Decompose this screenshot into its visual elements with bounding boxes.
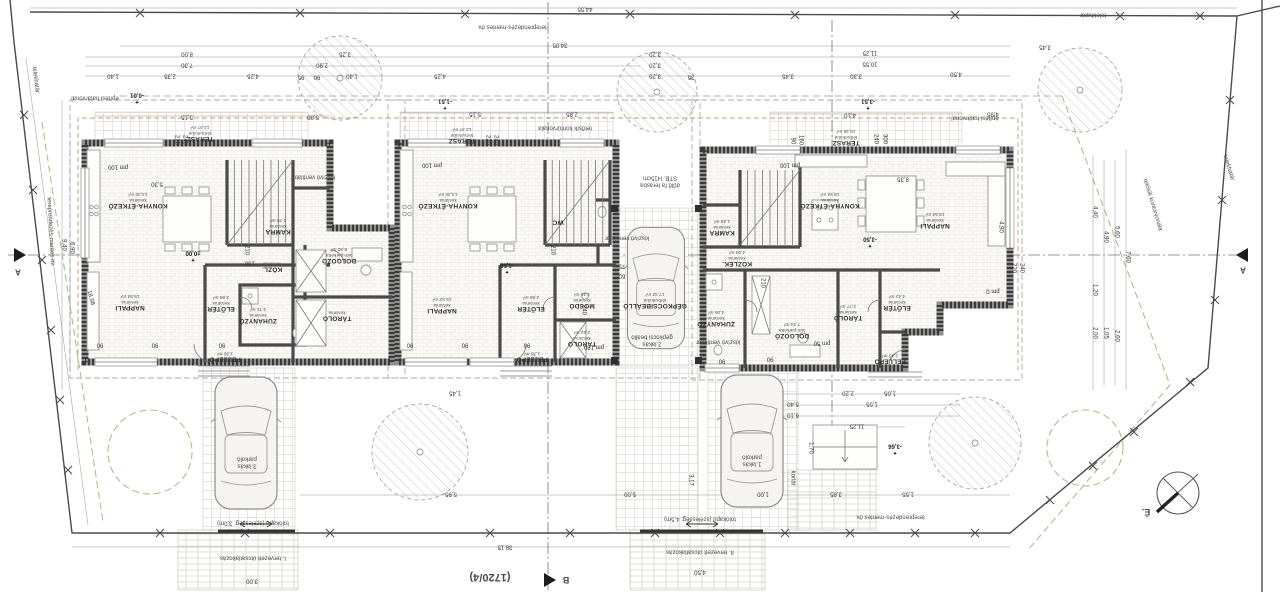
dimension-label: 130 [245,259,255,266]
elevation-label: -1,50 [500,261,514,274]
label-text: 60 [619,272,626,279]
label-text: (1720/4) [470,571,511,583]
label-text: II. tervezett útcsatlakozás [666,548,734,555]
annotation-label: tolókapu (szélesség: 4,5m) [664,515,736,522]
label-text: 1,05 [884,389,896,396]
room-finish: kerámia [418,196,477,201]
label-text: telekhatár [1080,11,1106,18]
room-label-zuhanyz-: ZUHANYZÓkerámia4,06 m² [697,309,735,327]
annotation-label: tolókapu (szélesség: 3,0m) [217,519,289,526]
dimension-label: 90 [407,341,414,348]
room-label-konyha-tkez-: KONYHA-ÉTKEZŐkerámia13,30 m² [418,191,477,209]
label-text: 1,20 [1091,284,1098,296]
label-text: telekhatár [1221,154,1235,181]
room-name: MOSDÓ [569,302,595,309]
label-text: 35 [688,73,695,80]
dimension-label: 3,00 [246,577,258,584]
label-text: pm 100 [780,161,800,168]
label-text: 240 [492,135,499,145]
label-text: 5,60 [1113,226,1120,238]
dimension-label: 6,90 [68,242,75,254]
label-text: 75 [619,262,626,269]
room-label-zuhanyz-: ZUHANYZÓkerámia3,71 m² [239,306,277,324]
label-text: pm 100 [108,163,128,170]
dimension-label: pm 100 [422,161,442,168]
label-text: 220 [1010,263,1017,273]
room-area: 18,54 m² [800,191,859,196]
label-text: 5,95 [445,490,457,497]
room-label-el-t-r: ELŐTÉRkerámia3,88 m² [207,294,235,312]
annotation-label: tereprendezés-mentes öv. [855,513,924,520]
elevation-label: -1,51 [438,97,452,110]
dimension-label: 90 [524,341,531,348]
dimension-label: 90 [97,341,104,348]
dimension-label: 9,40 [60,239,67,251]
dimension-label: 1,70 [807,442,814,454]
elevation-label: ±0,00 [186,249,201,262]
room-finish: kerámia [108,196,167,201]
room-area: 2,45 m² [874,352,905,357]
dimension-label: 5,40 [787,400,799,407]
room-name: FELLÉPŐ [516,355,547,362]
label-text: 4,25 [434,72,446,79]
dimension-label: 1,40 [107,72,119,79]
room-label-nappali: NAPPALIkerámia15,54 m² [115,293,144,311]
room-label-k-zlek-: KÖZLEK.kerámia4,00 m² [722,249,752,267]
room-name: KONYHA-ÉTKEZŐ [108,202,167,209]
label-text: 2,60 [1113,330,1120,342]
room-finish: térburkolat [186,129,213,134]
room-name: KONYHA-ÉTKEZŐ [418,202,477,209]
dimension-label: 2,00 [1091,327,1098,339]
label-text: 240 [872,134,879,144]
room-finish: kerámia [265,222,290,227]
room-name: TÁROLÓ [834,314,863,321]
room-label-konyha-tkez-: KONYHA-ÉTKEZŐkerámia13,30 m² [108,191,167,209]
label-text: 11,25 [850,422,865,429]
label-text: -1,51 [438,97,452,104]
label-text: 1,55 [866,400,878,407]
label-text: 3,00 [246,577,258,584]
dimension-label: 5,15 [181,113,193,120]
room-label-terasz: TERASZtérburkolat15,25 m² [832,128,859,146]
room-finish: kerámia [427,301,456,306]
dimension-label: 4,50 [950,70,962,77]
room-area: 3,71 m² [239,306,277,311]
dimension-label: 90 [767,355,774,362]
label-text: 9,40 [60,239,67,251]
room-name: GÉPKOCSIBEÁLLÓ [623,302,687,309]
label-text: 4,90 [997,221,1004,233]
label-text: I. tervezett útcsatlakozás [220,554,286,561]
label-text: 2,35 [164,72,176,79]
label-text: tetősík kontúrvonala [1141,178,1163,231]
label-text: korlát [789,471,796,486]
label-text: 90 [407,341,414,348]
room-name: WC [552,218,563,225]
label-text: 10,55 [862,60,877,67]
dimension-label: 1,45 [449,389,461,396]
room-name: DOLGOZÓ [322,257,356,264]
room-name: NAPPALI [920,222,949,229]
label-text: 44,55 [577,5,592,12]
annotation-label: I. tervezett útcsatlakozás [220,554,286,561]
dimension-label: 1,20 [1091,284,1098,296]
room-label-g-pkocsibe-ll-: GÉPKOCSIBEÁLLÓtérburkolat17,42 m² [623,291,687,309]
dimension-label: 90 [152,341,159,348]
annotation-label: kiszívó ventilátor [696,338,740,345]
label-text: 5,40 [787,400,799,407]
label-text: kiszívó ventilátor [605,234,649,241]
dimension-label: 210 [549,245,556,255]
dimension-label: 1,05 [1102,327,1109,339]
room-finish: kerámia [834,308,863,313]
annotation-label: dűlő fa terasbaSTB. H15cm [640,174,680,187]
room-area: 4,42 m² [883,293,911,298]
label-text: 3,45 [782,72,794,79]
dimension-label: 8,35 [897,175,909,182]
dimension-label: 1,40 [346,72,358,79]
dimension-label: 4,25 [247,72,259,79]
room-area: 4,06 m² [697,309,735,314]
room-finish: térburkolat [832,133,859,138]
dimension-label: 2,85 [566,110,578,117]
dimension-label: 18,98 [85,290,95,306]
label-text: pm 0 [986,287,999,294]
dimension-label: 7,30 [181,61,193,68]
label-text: 2,00 [1091,327,1098,339]
label-text: 90 [152,341,159,348]
label-text: 1,00 [757,490,769,497]
dimension-label: 3,85 [830,490,842,497]
label-text: -3,66 [888,442,902,449]
room-name: ELŐTÉR [517,305,545,312]
label-text: 2,20 [842,389,854,396]
label-text: 240 [1018,263,1025,273]
label-text: kiszívó ventilátor [291,173,335,180]
dimension-label: 11,25 [850,422,865,429]
label-text: 1,70 [807,442,814,454]
dimension-label: pm 100 [780,161,800,168]
dimension-label: 2,60 [1113,330,1120,342]
section-marker-a-left-label: A [15,267,21,276]
dimension-label: 35 [688,73,695,80]
room-area: 15,52 m² [427,296,456,301]
dimension-label: 11,25 [863,49,878,56]
room-label-wc: WC [552,218,563,225]
annotation-label: telekhatár [30,67,40,94]
dimension-label: 90 [219,341,226,348]
label-text: építési határvonal [951,114,998,121]
dimension-label: 60 [619,272,626,279]
label-text: 3,30 [850,72,862,79]
label-text: 4,10 [844,111,856,118]
room-name: KÖZL. [262,265,283,272]
dimension-label: pm 100 [108,163,128,170]
dimension-label: 3,20 [649,72,661,79]
room-finish: kerámia [722,254,752,259]
room-name: FELLÉPŐ [874,357,905,364]
room-finish: kerámia [262,260,283,265]
room-finish: kerámia [709,223,734,228]
room-area: 13,30 m² [418,191,477,196]
room-label-dolgoz-: DOLGOZÓlam.parketta8,30 m² [322,246,356,264]
room-finish: kerámia [517,299,545,304]
label-text: 38,15 [497,543,512,550]
dimension-label: 210 [243,245,250,255]
label-text: -1,50 [500,261,514,268]
label-text: pm 50 [814,339,831,346]
label-text: tereprendezés-mentes öv. [45,197,55,267]
label-text: -3,50 [863,235,877,242]
dimension-label: 1,00 [757,490,769,497]
room-label-mosd-: MOSDÓkerámia1,40 m² [569,291,595,309]
annotation-label: tetősík kontúrvonala [1141,178,1163,231]
label-text: 4,90 [1102,231,1109,243]
room-area: 3,77 m² [834,303,863,308]
dimension-label: 34,05 [552,41,567,48]
dimension-label: 5,15 [469,110,481,117]
label-text: 4,50 [950,70,962,77]
dimension-label: 1,55 [902,490,914,497]
room-finish: kerámia [697,314,735,319]
room-finish: kerámia [800,196,859,201]
section-marker-a-right-label: A [1240,265,1246,274]
room-name: TÁROLÓ [568,340,597,347]
room-finish: kerámia [323,309,352,314]
room-label-fell-p-: FELLÉPŐ1,35 m² [209,350,240,363]
label-text: 5,15 [469,110,481,117]
dimension-label: 3,17 [687,474,694,486]
annotation-label: II. tervezett útcsatlakozás [666,548,734,555]
annotation-label: építési határvonal [71,94,118,101]
label-text: 1,45 [449,389,461,396]
room-label-t-rol-: TÁROLÓkerámia3,77 m² [834,303,863,321]
room-label-fell-p-: FELLÉPŐ1,35 m² [516,350,547,363]
room-area: 2,52 m² [568,329,597,334]
label-text: 220 [173,135,180,145]
label-text: É. [1142,507,1151,517]
dimension-label: 5,00 [624,490,636,497]
label-text: pm 100 [422,161,442,168]
dimension-label: 7,60 [1124,251,1131,263]
dimension-label: 75 [619,262,626,269]
annotation-label: építési határvonal [951,114,998,121]
room-area: 17,42 m² [623,291,687,296]
label-text: 34,05 [552,41,567,48]
dimension-label: 1,55 [866,400,878,407]
label-text: 8,35 [897,175,909,182]
dimension-label: 3,45 [782,72,794,79]
dimension-label: 240 [1018,263,1025,273]
room-area: 15,54 m² [115,293,144,298]
label-text: 3,25 [339,50,351,57]
annotation-label: 3.lakásparkoló [237,455,257,468]
label-text: tolókapu (szélesség: 3,0m) [217,519,289,526]
annotation-label: telekhatár [1221,154,1235,181]
dimension-label: pm 50 [814,339,831,346]
dimension-label: 1,05 [884,389,896,396]
label-text: 210 [759,278,766,288]
dimension-label: 4,10 [844,111,856,118]
label-text: parkoló [742,453,762,460]
dimension-label: 2,20 [842,389,854,396]
room-name: TERASZ [186,135,213,142]
label-text: 5,15 [181,113,193,120]
room-finish: kerámia [239,311,277,316]
dimension-label: 3,25 [339,50,351,57]
dimension-label: pm 0 [986,287,999,294]
label-text: -3,51 [861,97,875,104]
dimension-label: 90 [789,138,796,145]
room-finish: kerámia [569,296,595,301]
dimension-label: 2,90 [316,61,328,68]
label-text: 2,90 [316,61,328,68]
label-text: 300 [881,134,888,144]
label-text: 7,30 [181,61,193,68]
label-text: 3,20 [649,72,661,79]
annotation-label: korlát [789,471,796,486]
label-text: 8,00 [181,50,193,57]
dimension-label: 210 [759,278,766,288]
label-text: 6,10 [787,411,799,418]
label-text: STB. H15cm [640,174,680,181]
room-label-konyha-tkez-: KONYHA-ÉTKEZŐkerámia18,54 m² [800,191,859,209]
room-name: FELLÉPŐ [209,355,240,362]
elevation-label: -3,66 [888,442,902,455]
dimension-label: 240 [492,135,499,145]
label-text: 18,98 [85,290,95,306]
room-finish: lam.parketta [775,326,809,331]
dimension-label: 4,90 [997,221,1004,233]
dimension-label: 6,10 [787,411,799,418]
label-text: 130 [245,259,255,266]
label-text: B [563,575,570,585]
label-text: -0,01 [130,91,144,98]
room-area: 1,48 m² [709,218,734,223]
label-text: 90 [719,357,726,364]
room-name: ELŐTÉR [883,304,911,311]
label-text: 3,45 [1039,43,1051,50]
label-text: építési határvonal [71,94,118,101]
label-text: 90 [462,341,469,348]
room-finish: térburkolat [623,296,687,301]
label-text: 2,85 [566,110,578,117]
dimension-label: 5,80 [307,113,319,120]
dimension-label: 4,25 [434,72,446,79]
label-text: 7,60 [1124,251,1131,263]
label-text: 5,00 [624,490,636,497]
room-finish: kerámia [883,298,911,303]
room-area: 3,56 m² [517,294,545,299]
room-name: KAMRA [709,229,734,236]
annotation-label: 1.lakásparkoló [742,453,762,466]
room-label-t-rol-: TÁROLÓkerámia [323,309,352,322]
dimension-label: 3,30 [850,72,862,79]
dimension-label: 300 [881,134,888,144]
dimension-label: 90 [314,73,321,80]
label-text: 5,80 [307,113,319,120]
room-finish: kerámia [568,334,597,339]
room-label-nappali: NAPPALIkerámia18,54 m² [920,211,949,229]
label-text: 90 [219,341,226,348]
label-text: gépkocsi beálló [631,333,672,340]
room-area: 1,35 m² [516,350,547,355]
label-text: 3,20 [649,50,661,57]
dimension-label: 220 [484,135,491,145]
label-text: tolókapu (szélesség: 4,5m) [664,515,736,522]
annotation-label: tereprendezés-mentes öv. [477,23,546,30]
room-label-dolgoz-: DOLGOZÓlam.parketta7,34 m² [775,321,809,339]
label-text: 210 [549,245,556,255]
label-text: 4,40 [1091,206,1098,218]
dimension-label: 44,55 [577,5,592,12]
room-area: 3,88 m² [207,294,235,299]
room-finish: kerámia [920,216,949,221]
room-label-el-t-r: ELŐTÉRkerámia3,56 m² [517,294,545,312]
dimension-label: 220 [173,135,180,145]
room-label-nappali: NAPPALIkerámia15,52 m² [427,296,456,314]
label-text: tetősík kontúrvonala [538,124,592,131]
room-label-kamra: KAMRAkerámia1,48 m² [709,218,734,236]
label-text: 1,55 [902,490,914,497]
dimension-label: 4,40 [1091,206,1098,218]
annotation-label: kiszívó ventilátor [291,173,335,180]
label-text: tereprendezés-mentes öv. [855,513,924,520]
dimension-label: 5,95 [445,490,457,497]
annotation-label: tereprendezés-mentes öv. [45,197,55,267]
label-text: 90 [97,341,104,348]
label-text: 6,90 [68,242,75,254]
dimension-label: 10,55 [862,60,877,67]
label-text: 3,17 [687,474,694,486]
lot-number-label: (1720/4) [470,571,511,583]
room-area: 1,35 m² [209,350,240,355]
label-text: 160 [797,135,804,145]
room-area: 1,40 m² [569,291,595,296]
room-label-fell-p-: FELLÉPŐ2,45 m² [874,352,905,365]
elevation-label: -3,51 [861,97,875,110]
label-text: 90 [789,138,796,145]
annotation-label: 2.lakásgépkocsi beálló [631,333,672,346]
label-text: 3.lakás [237,462,257,469]
room-name: ZUHANYZÓ [697,320,735,327]
label-text: A [1240,265,1246,274]
label-text: 4,25 [247,72,259,79]
elevation-label: -0,01 [130,91,144,104]
room-area: 13,30 m² [108,191,167,196]
label-text: A [15,267,21,276]
dimension-label: 240 [872,134,879,144]
room-name: TERASZ [832,139,859,146]
label-text: 95 [298,73,305,80]
annotation-label: kiszívó ventilátor [605,234,649,241]
label-text: kiszívó ventilátor [696,338,740,345]
label-text: parkoló [237,455,257,462]
annotation-label: tetősík kontúrvonala [538,124,592,131]
dimension-label: 38,15 [497,543,512,550]
room-area: 4,00 m² [722,249,752,254]
north-label: É. [1142,507,1151,517]
dimension-label: 95 [298,73,305,80]
dimension-label: 5,30 [151,180,163,187]
label-text: 220 [484,135,491,145]
label-text: dűlő fa terasba [640,181,680,188]
label-text: 5,30 [151,180,163,187]
label-text: tereprendezés-mentes öv. [477,23,546,30]
room-label-t-rol-: TÁROLÓkerámia2,52 m² [568,329,597,347]
text-annotations-layer: 44,5534,0511,2510,558,003,253,207,302,90… [0,0,1280,592]
